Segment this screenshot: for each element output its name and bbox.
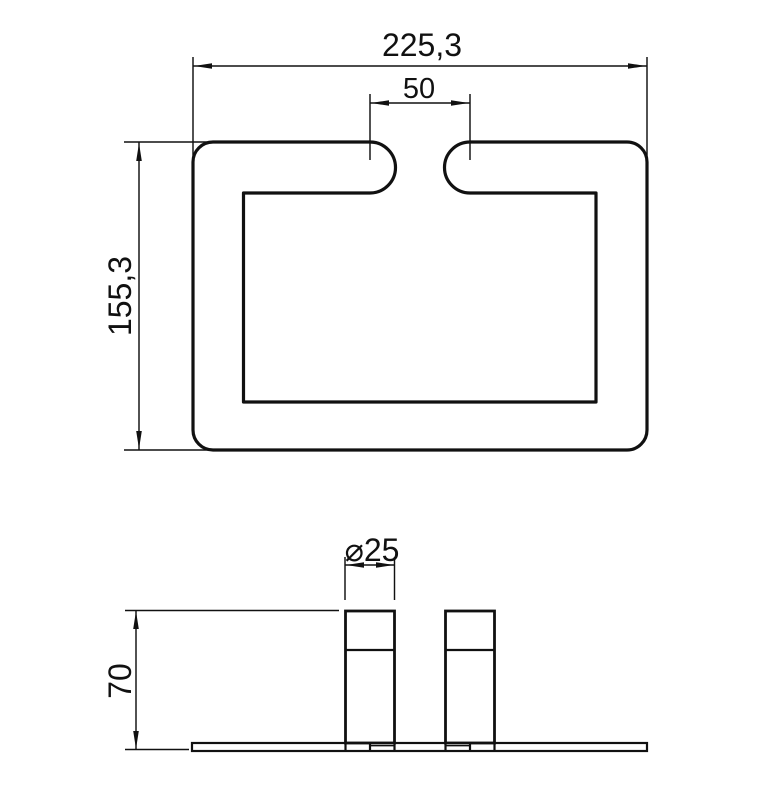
dimension-label-height: 155,3 (102, 256, 138, 336)
arrowhead-right (451, 100, 469, 106)
profile-outline (193, 142, 647, 450)
arrowhead-left (371, 100, 389, 106)
dimension-label-diameter: ⌀25 (345, 532, 400, 568)
base-plate (192, 743, 647, 751)
arrowhead-top (136, 143, 142, 161)
right-post (446, 611, 495, 743)
arrowhead-bottom (136, 431, 142, 449)
dimension-post-height: 70 (102, 611, 339, 750)
dimension-post-diameter: ⌀25 (345, 532, 400, 600)
dimension-label-width: 225,3 (382, 27, 462, 63)
front-view: ⌀25 70 (102, 532, 647, 751)
dimension-label-slot: 50 (403, 73, 435, 105)
dimension-label-post-height: 70 (102, 663, 138, 699)
arrowhead-bottom (133, 731, 139, 749)
top-view: 225,3 50 155,3 (102, 27, 647, 450)
arrowhead-top (133, 611, 139, 629)
left-post (346, 611, 395, 743)
technical-drawing: 225,3 50 155,3 (0, 0, 763, 800)
arrowhead-right (628, 63, 646, 69)
arrowhead-left (194, 63, 212, 69)
drawing-sheet: 225,3 50 155,3 (0, 0, 763, 800)
